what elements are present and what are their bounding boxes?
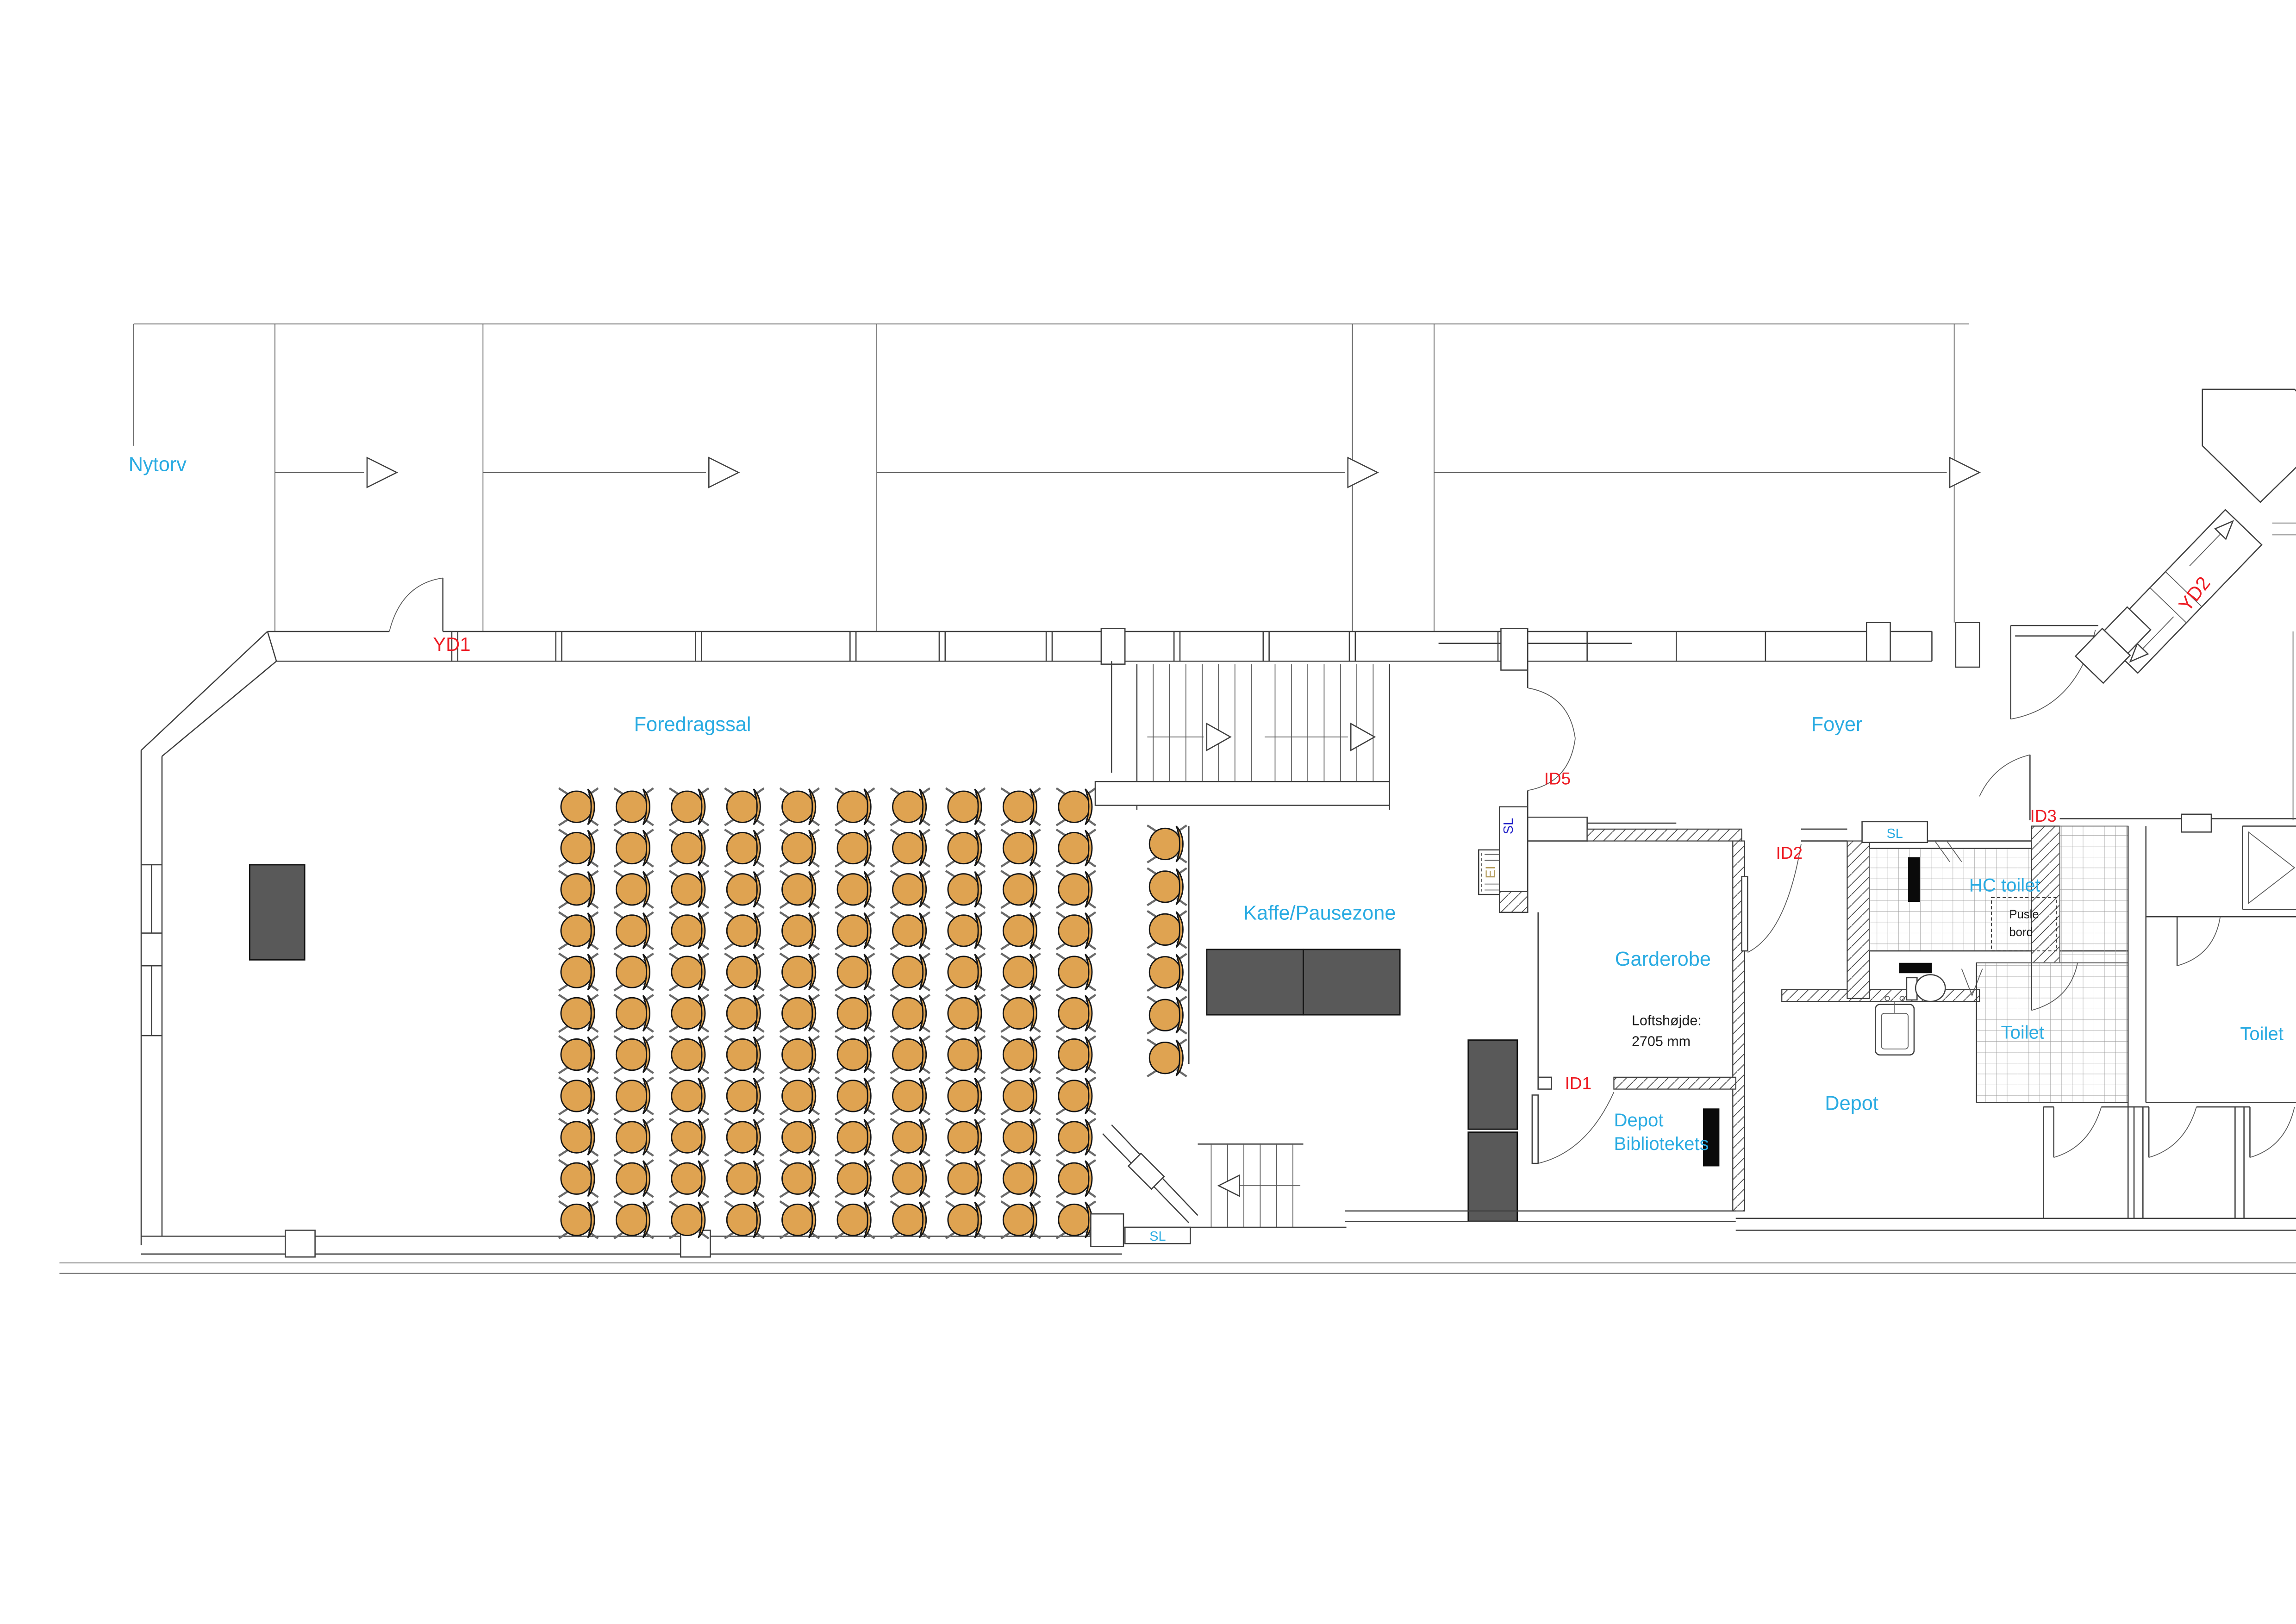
washbasin-fixture (1908, 857, 1920, 902)
chair (559, 788, 598, 825)
chair (1056, 1118, 1096, 1156)
chair (1147, 954, 1186, 991)
door-toilet-right (2177, 917, 2220, 966)
chair (946, 788, 985, 825)
yd2-entrance: YD2 (2076, 389, 2296, 820)
coffee-zone: Kaffe/Pausezone SL (1091, 826, 1400, 1246)
chair (946, 912, 985, 949)
chair (891, 1118, 930, 1156)
chair (1147, 997, 1186, 1034)
chair (835, 1036, 874, 1073)
chair (780, 1118, 819, 1156)
chair (724, 1201, 764, 1238)
chair (946, 995, 985, 1032)
pusle-label-2: bord (2009, 926, 2033, 939)
lectern (250, 865, 305, 960)
room-label-depot-bib-2: Bibliotekets (1614, 1133, 1709, 1154)
chair (724, 1036, 764, 1073)
chair (669, 912, 709, 949)
direction-arrow (709, 458, 738, 487)
chair (559, 1118, 598, 1156)
site-boundary: Nytorv (129, 324, 1979, 631)
ceiling-height-note-1: Loftshøjde: (1632, 1013, 1702, 1029)
door-foyer-corner (2011, 625, 2098, 719)
ceiling-height-note-2: 2705 mm (1632, 1034, 1691, 1049)
room-label-hc-toilet: HC toilet (1969, 875, 2040, 896)
chair (1001, 912, 1040, 949)
chair (559, 954, 598, 991)
room-label-depot-bib-1: Depot (1614, 1110, 1663, 1131)
chair (614, 1201, 654, 1238)
stairs-main (1095, 664, 1390, 810)
cabinet-label-ei: EI (1484, 866, 1498, 878)
chair (780, 954, 819, 991)
chair (1147, 825, 1186, 862)
chair (614, 954, 654, 991)
el-cabinet: EI (1479, 850, 1499, 894)
chair (1056, 1036, 1096, 1073)
chair (835, 1118, 874, 1156)
chair (946, 1160, 985, 1197)
chair (559, 1077, 598, 1114)
chair (891, 1036, 930, 1073)
window-label-sl-side: SL (1501, 818, 1516, 834)
chair (835, 871, 874, 908)
chair (946, 1118, 985, 1156)
door-id3 (1979, 755, 2030, 820)
chair (614, 995, 654, 1032)
chair (724, 1160, 764, 1197)
room-label-garderobe: Garderobe (1615, 948, 1711, 970)
chair (559, 871, 598, 908)
chair (1056, 871, 1096, 908)
chair (891, 954, 930, 991)
chair (1001, 1118, 1040, 1156)
chair (1056, 830, 1096, 867)
garderobe-counter (1468, 1132, 1517, 1222)
chair (835, 912, 874, 949)
grab-bar (1899, 963, 1932, 973)
chair (835, 995, 874, 1032)
chair (891, 912, 930, 949)
chair (559, 830, 598, 867)
chair (1001, 1077, 1040, 1114)
chair (780, 1036, 819, 1073)
chair (614, 788, 654, 825)
chair (669, 830, 709, 867)
chair (559, 1036, 598, 1073)
direction-arrow (1950, 458, 1979, 487)
foyer: Foyer (1811, 713, 1863, 736)
chair (724, 830, 764, 867)
chair (1001, 1160, 1040, 1197)
chair (891, 871, 930, 908)
chair (780, 871, 819, 908)
chair (780, 1201, 819, 1238)
door-stall-2 (2149, 1107, 2196, 1157)
door-yd1 (389, 578, 443, 632)
chair (780, 788, 819, 825)
floor-plan: Nytorv YD1 (0, 0, 2296, 1624)
chair (614, 1118, 654, 1156)
chair (835, 954, 874, 991)
chair (1001, 1036, 1040, 1073)
chair (891, 1160, 930, 1197)
chair (559, 1160, 598, 1197)
chair (946, 954, 985, 991)
chair (669, 1160, 709, 1197)
direction-arrow (367, 458, 397, 487)
coffee-table (1207, 949, 1304, 1015)
chair (946, 1201, 985, 1238)
chair (891, 830, 930, 867)
room-label-foyer: Foyer (1811, 713, 1863, 736)
door-id1 (1532, 1092, 1614, 1163)
door-stall-3 (2250, 1107, 2294, 1157)
chair (946, 1036, 985, 1073)
chair (614, 1077, 654, 1114)
chair (835, 1160, 874, 1197)
chair (614, 830, 654, 867)
stairs-down: SL (1091, 1144, 1346, 1246)
chair (891, 1077, 930, 1114)
chair (559, 1201, 598, 1238)
door-label-id3: ID3 (2030, 806, 2057, 825)
door-label-id1: ID1 (1565, 1074, 1591, 1093)
chair (724, 1118, 764, 1156)
chair (1056, 1077, 1096, 1114)
chair (891, 995, 930, 1032)
chair (1001, 830, 1040, 867)
chair (724, 995, 764, 1032)
room-label-toilet-left: Toilet (2001, 1022, 2044, 1043)
chair (946, 871, 985, 908)
chair (559, 912, 598, 949)
chair (669, 1077, 709, 1114)
chair (1056, 788, 1096, 825)
pusle-label-1: Pusle (2009, 908, 2039, 921)
stair-arrow (1351, 724, 1374, 750)
chair (1056, 1201, 1096, 1238)
sink (1875, 996, 1914, 1055)
chair (724, 954, 764, 991)
shaft-symbol (2248, 832, 2295, 903)
chair (780, 830, 819, 867)
door-stall-1 (2054, 1107, 2102, 1157)
chair (724, 1077, 764, 1114)
chair (1001, 954, 1040, 991)
room-label-depot: Depot (1825, 1093, 1878, 1115)
chair (835, 1201, 874, 1238)
chairs-layer (559, 788, 1186, 1238)
chair (724, 788, 764, 825)
door-label-id2: ID2 (1776, 843, 1803, 862)
chair (1001, 1201, 1040, 1238)
window-label-sl-bottom: SL (1149, 1229, 1166, 1244)
toilet-fixture (1907, 974, 1945, 1001)
chair (614, 912, 654, 949)
door-label-yd1: YD1 (433, 633, 470, 655)
room-label-foredragssal: Foredragssal (634, 713, 751, 736)
chair (669, 871, 709, 908)
chair (835, 788, 874, 825)
chair (1001, 788, 1040, 825)
chair (780, 1160, 819, 1197)
chair (1056, 954, 1096, 991)
chair (669, 995, 709, 1032)
chair (1001, 995, 1040, 1032)
chair (1056, 1160, 1096, 1197)
lecture-hall: Foredragssal (250, 661, 1186, 1238)
window-label-sl-top: SL (1887, 826, 1903, 841)
chair (946, 830, 985, 867)
chair (724, 912, 764, 949)
chair (669, 1036, 709, 1073)
chair (614, 871, 654, 908)
chair (780, 1077, 819, 1114)
chair (614, 1160, 654, 1197)
chair (724, 871, 764, 908)
chair (835, 1077, 874, 1114)
room-label-toilet-right: Toilet (2240, 1024, 2284, 1044)
chair (1056, 912, 1096, 949)
chair (891, 1201, 930, 1238)
chair (669, 788, 709, 825)
chair (946, 1077, 985, 1114)
chair (669, 954, 709, 991)
depot-bibliotekets: Depot Bibliotekets (1345, 1108, 1735, 1221)
chair (1001, 871, 1040, 908)
chair (1147, 1039, 1186, 1076)
chair (1056, 995, 1096, 1032)
depot: Depot (1782, 990, 1979, 1115)
room-label-kaffe: Kaffe/Pausezone (1243, 902, 1396, 924)
door-label-id5: ID5 (1544, 769, 1571, 788)
chair (1147, 868, 1186, 905)
chair (780, 912, 819, 949)
chair (780, 995, 819, 1032)
direction-arrow (1348, 458, 1378, 487)
chair (891, 788, 930, 825)
coffee-table (1303, 949, 1400, 1015)
chair (614, 1036, 654, 1073)
stair-arrow (1218, 1175, 1239, 1196)
chair (669, 1118, 709, 1156)
id5-area: ID5 SL EI (1479, 661, 1676, 912)
room-label-nytorv: Nytorv (129, 453, 187, 475)
garderobe-counter (1468, 1040, 1517, 1130)
chair (835, 830, 874, 867)
chair (1147, 911, 1186, 948)
chair (559, 995, 598, 1032)
